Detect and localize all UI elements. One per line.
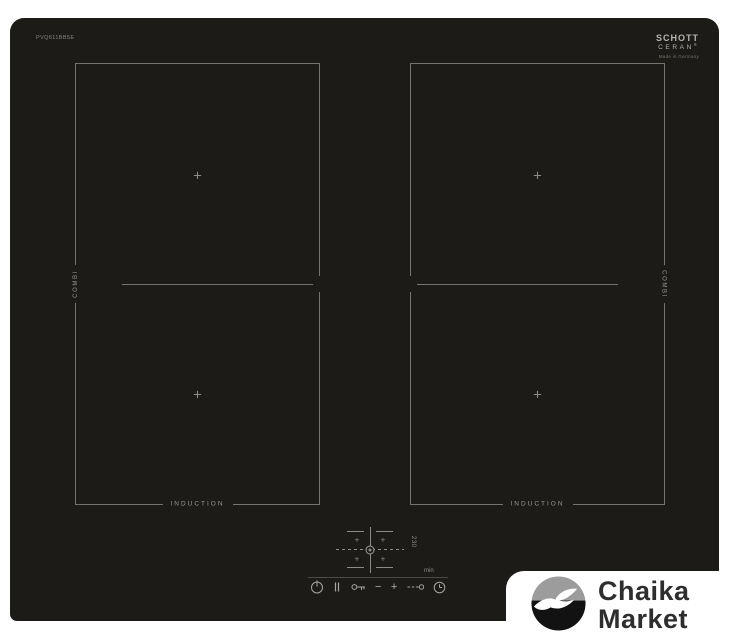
watermark-line-1: Chaika [598, 578, 690, 606]
selector-plus-mark: + [381, 555, 386, 564]
key-lock-icon [351, 582, 366, 593]
clock-icon [433, 581, 446, 594]
combi-label-left: COMBI [71, 265, 81, 303]
watermark-line-2: Market [598, 606, 690, 634]
watermark-text: Chaika Market [598, 578, 690, 633]
min-label: min [424, 568, 434, 574]
pan-position-mark: + [193, 167, 202, 184]
pause-icon [333, 581, 341, 593]
border-gap [318, 276, 321, 292]
registered-mark: ® [694, 42, 697, 47]
seagull-logo-icon [530, 575, 587, 637]
pan-position-mark: + [193, 386, 202, 403]
brand-line-1: SCHOTT [656, 33, 699, 43]
timer-select-icon [407, 582, 424, 592]
border-gap [409, 276, 412, 292]
model-number: PVQ611BB5E [36, 35, 74, 41]
selector-bracket [376, 567, 393, 568]
induction-label-right: INDUCTION [502, 500, 572, 509]
combi-label-right: COMBI [659, 265, 669, 303]
touch-control-panel: − + [308, 577, 448, 596]
selector-center-ring [366, 545, 375, 554]
chaika-market-watermark: Chaika Market [506, 571, 729, 640]
selector-plus-mark: + [381, 536, 386, 545]
cooking-zone-right: + + COMBI INDUCTION [410, 63, 665, 505]
schott-ceran-logo: SCHOTT CERAN® Made in Germany [656, 33, 699, 59]
zone-divider-line [122, 284, 313, 285]
pan-position-mark: + [533, 167, 542, 184]
selector-bracket [347, 531, 364, 532]
brand-line-2: CERAN® [656, 43, 699, 52]
cooking-zone-left: + + COMBI INDUCTION [75, 63, 320, 505]
zone-selector-graphic: + + + + [336, 526, 404, 574]
selector-plus-mark: + [355, 555, 360, 564]
pan-position-mark: + [533, 386, 542, 403]
plus-button: + [391, 582, 397, 593]
product-image: PVQ611BB5E SCHOTT CERAN® Made in Germany… [0, 0, 729, 640]
zone-divider-line [417, 284, 618, 285]
selector-bracket [347, 567, 364, 568]
minus-button: − [375, 582, 381, 593]
selector-plus-mark: + [355, 536, 360, 545]
diameter-marking: 230 [410, 536, 416, 548]
power-icon [310, 580, 324, 594]
cooktop-surface: PVQ611BB5E SCHOTT CERAN® Made in Germany… [10, 18, 719, 621]
brand-subtext: Made in Germany [656, 54, 699, 59]
selector-bracket [376, 531, 393, 532]
induction-label-left: INDUCTION [162, 500, 232, 509]
